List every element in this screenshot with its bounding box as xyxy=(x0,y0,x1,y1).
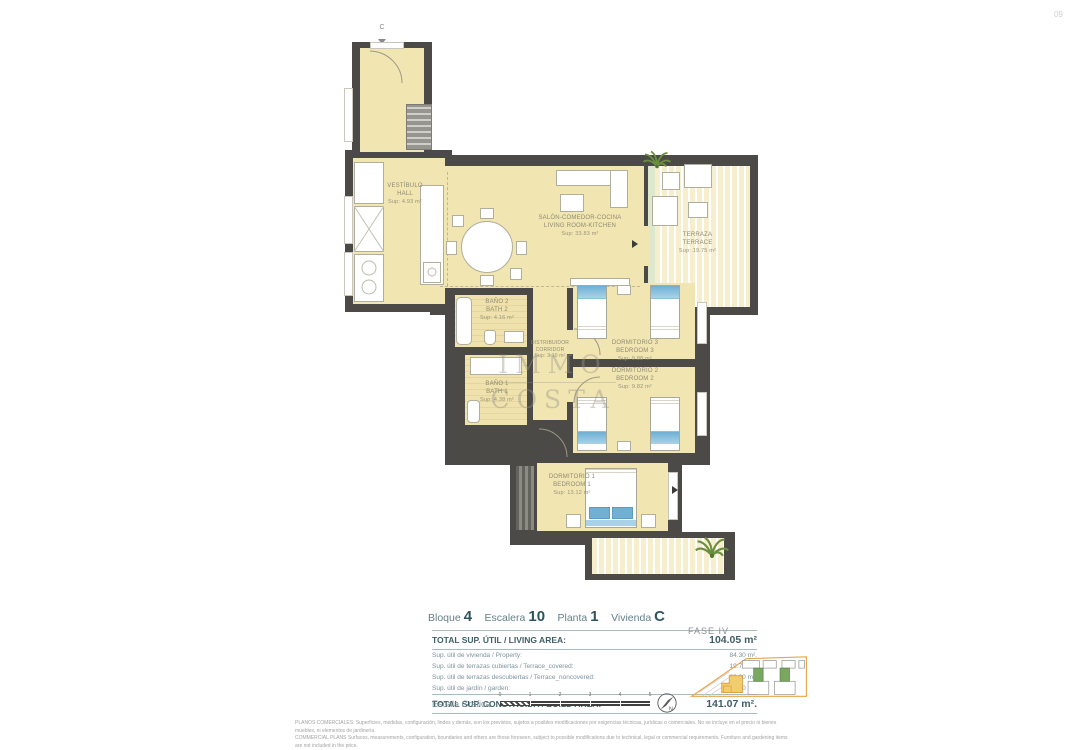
pillow xyxy=(612,507,633,519)
single-bed xyxy=(577,285,607,339)
entry-door-opening xyxy=(370,42,404,49)
fase-label: FASE IV xyxy=(688,626,729,636)
room-label-terraza: TERRAZATERRACESup: 19.75 m² xyxy=(655,232,740,255)
door-marker-icon xyxy=(672,486,678,494)
palm-icon xyxy=(694,536,730,572)
window xyxy=(344,252,353,296)
site-plan xyxy=(686,638,812,702)
watermark: IMMO COSTA xyxy=(490,348,616,417)
terrace-table xyxy=(688,202,708,218)
single-bed xyxy=(650,397,680,451)
window xyxy=(668,472,678,520)
floorplan-page: 09 C xyxy=(0,0,1080,750)
kitchen-unit-icon xyxy=(354,206,384,252)
toilet xyxy=(484,330,496,345)
palm-icon xyxy=(642,150,672,180)
chair xyxy=(480,275,494,286)
door-arc xyxy=(538,428,568,458)
dashed-line xyxy=(447,172,448,286)
single-bed xyxy=(650,285,680,339)
chair xyxy=(516,241,527,255)
compass-icon: N xyxy=(656,692,678,714)
chair xyxy=(510,268,522,280)
nightstand xyxy=(617,441,631,451)
page-number: 09 xyxy=(1054,10,1063,19)
door-marker-icon xyxy=(632,240,638,248)
nightstand xyxy=(641,514,656,528)
dashed-line xyxy=(440,286,640,287)
hob-icon xyxy=(354,254,384,302)
stairs xyxy=(406,104,432,150)
window xyxy=(697,302,707,344)
svg-text:N: N xyxy=(669,706,673,712)
sofa-chaise xyxy=(610,170,628,208)
room-label-salon: SALÓN-COMEDOR-COCINALIVING ROOM-KITCHENS… xyxy=(520,215,640,238)
chair xyxy=(480,208,494,219)
terrace-lounger xyxy=(652,196,678,226)
dining-table xyxy=(461,221,513,273)
room-label-dormitorio1: DORMITORIO 1BEDROOM 1Sup: 13.12 m² xyxy=(540,474,604,497)
disclaimer: PLANOS COMERCIALES: Superficies, medidas… xyxy=(295,720,795,750)
nightstand xyxy=(617,285,631,295)
window xyxy=(344,88,353,142)
terrace-door-opening xyxy=(644,226,650,266)
window xyxy=(344,196,353,244)
wardrobe xyxy=(515,465,535,531)
pillow xyxy=(589,507,610,519)
nightstand xyxy=(566,514,581,528)
terrace-lounger xyxy=(684,164,712,188)
scale-label: Escala Gráfica xyxy=(432,699,491,709)
corridor-opening xyxy=(533,288,567,308)
chair xyxy=(452,215,464,227)
window xyxy=(697,392,707,436)
door-arc xyxy=(368,50,404,84)
sink-icon xyxy=(423,262,441,283)
coffee-table xyxy=(560,194,584,212)
unit-title: Bloque4 Escalera10 Planta1 ViviendaC xyxy=(428,608,665,626)
washbasin xyxy=(504,331,524,343)
room-label-vestibulo: VESTÍBULOHALLSup: 4.93 m² xyxy=(365,183,445,206)
chair xyxy=(446,241,457,255)
room-label-bano2: BAÑO 2BATH 2Sup: 4.16 m² xyxy=(468,299,526,322)
